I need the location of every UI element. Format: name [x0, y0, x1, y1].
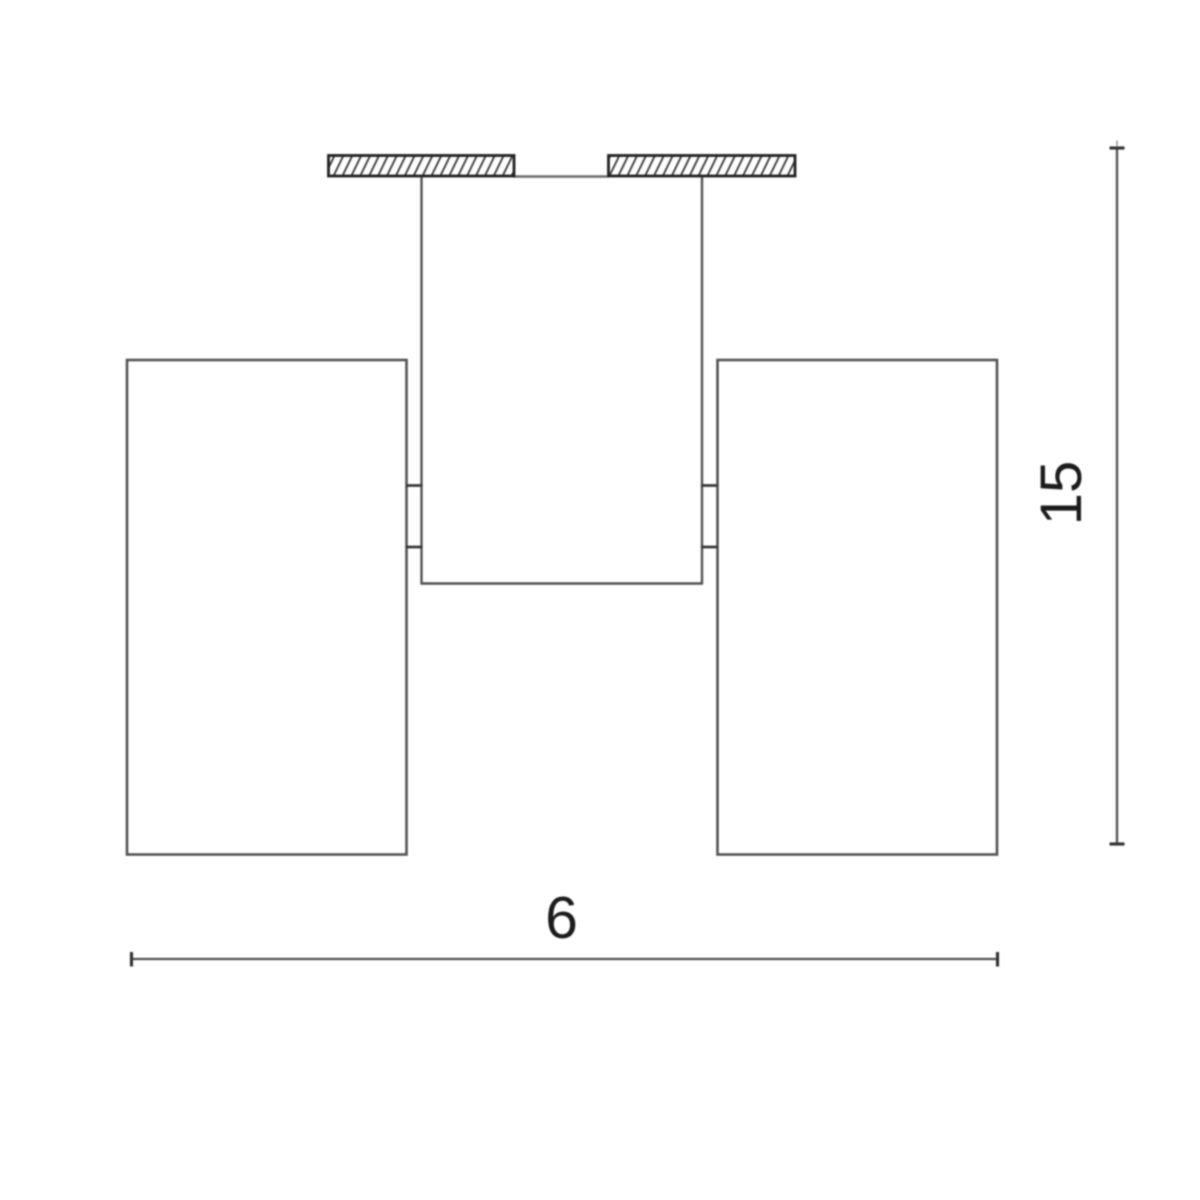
- svg-text:15: 15: [1029, 461, 1094, 526]
- svg-text:6: 6: [545, 885, 578, 951]
